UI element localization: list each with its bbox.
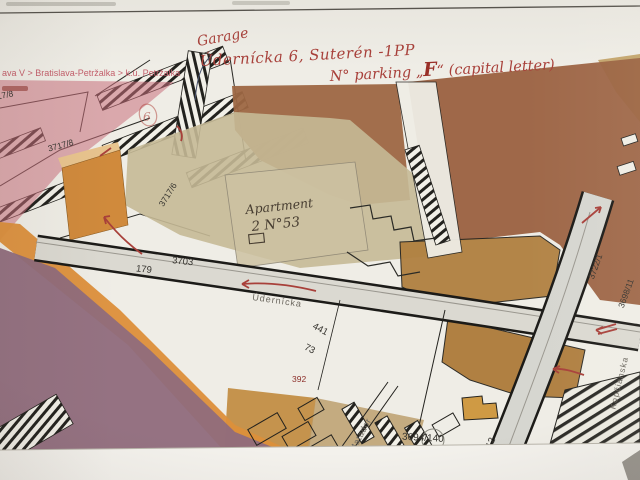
parcel-label-red: 392 [292, 374, 306, 384]
circled-digit: 6 [143, 110, 151, 124]
cadastral-map-photo: 3717/8 3717/8 3717/6 3703 179 441 73 392… [0, 0, 640, 480]
header-smudge [232, 1, 290, 5]
header-smudge [6, 2, 116, 6]
parcel-label: 179 [135, 263, 152, 276]
map-canvas: 3717/8 3717/8 3717/6 3703 179 441 73 392… [0, 0, 640, 480]
breadcrumb: ava V > Bratislava-Petržalka > k.ú. Petr… [2, 68, 180, 78]
photo-bottom-margin [0, 443, 640, 480]
small-red-label-smudge [2, 86, 28, 91]
parcel-label: 3703 [172, 255, 194, 268]
parcel-label: 3694/140 [402, 432, 445, 445]
